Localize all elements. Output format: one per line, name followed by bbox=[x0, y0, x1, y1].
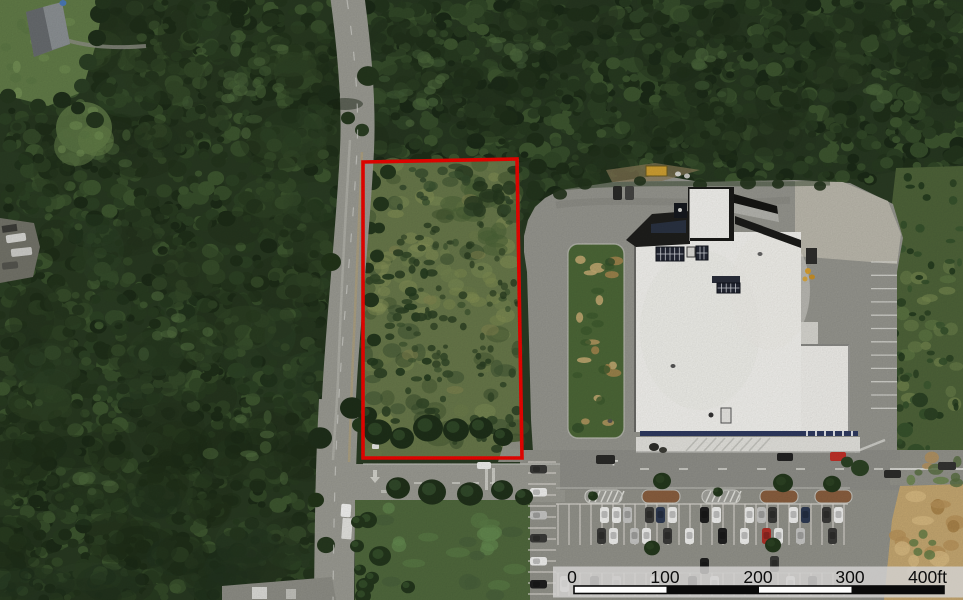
svg-text:0: 0 bbox=[567, 567, 577, 587]
svg-text:200: 200 bbox=[743, 567, 772, 587]
svg-text:100: 100 bbox=[650, 567, 679, 587]
svg-text:400ft: 400ft bbox=[908, 567, 947, 587]
svg-text:300: 300 bbox=[835, 567, 864, 587]
